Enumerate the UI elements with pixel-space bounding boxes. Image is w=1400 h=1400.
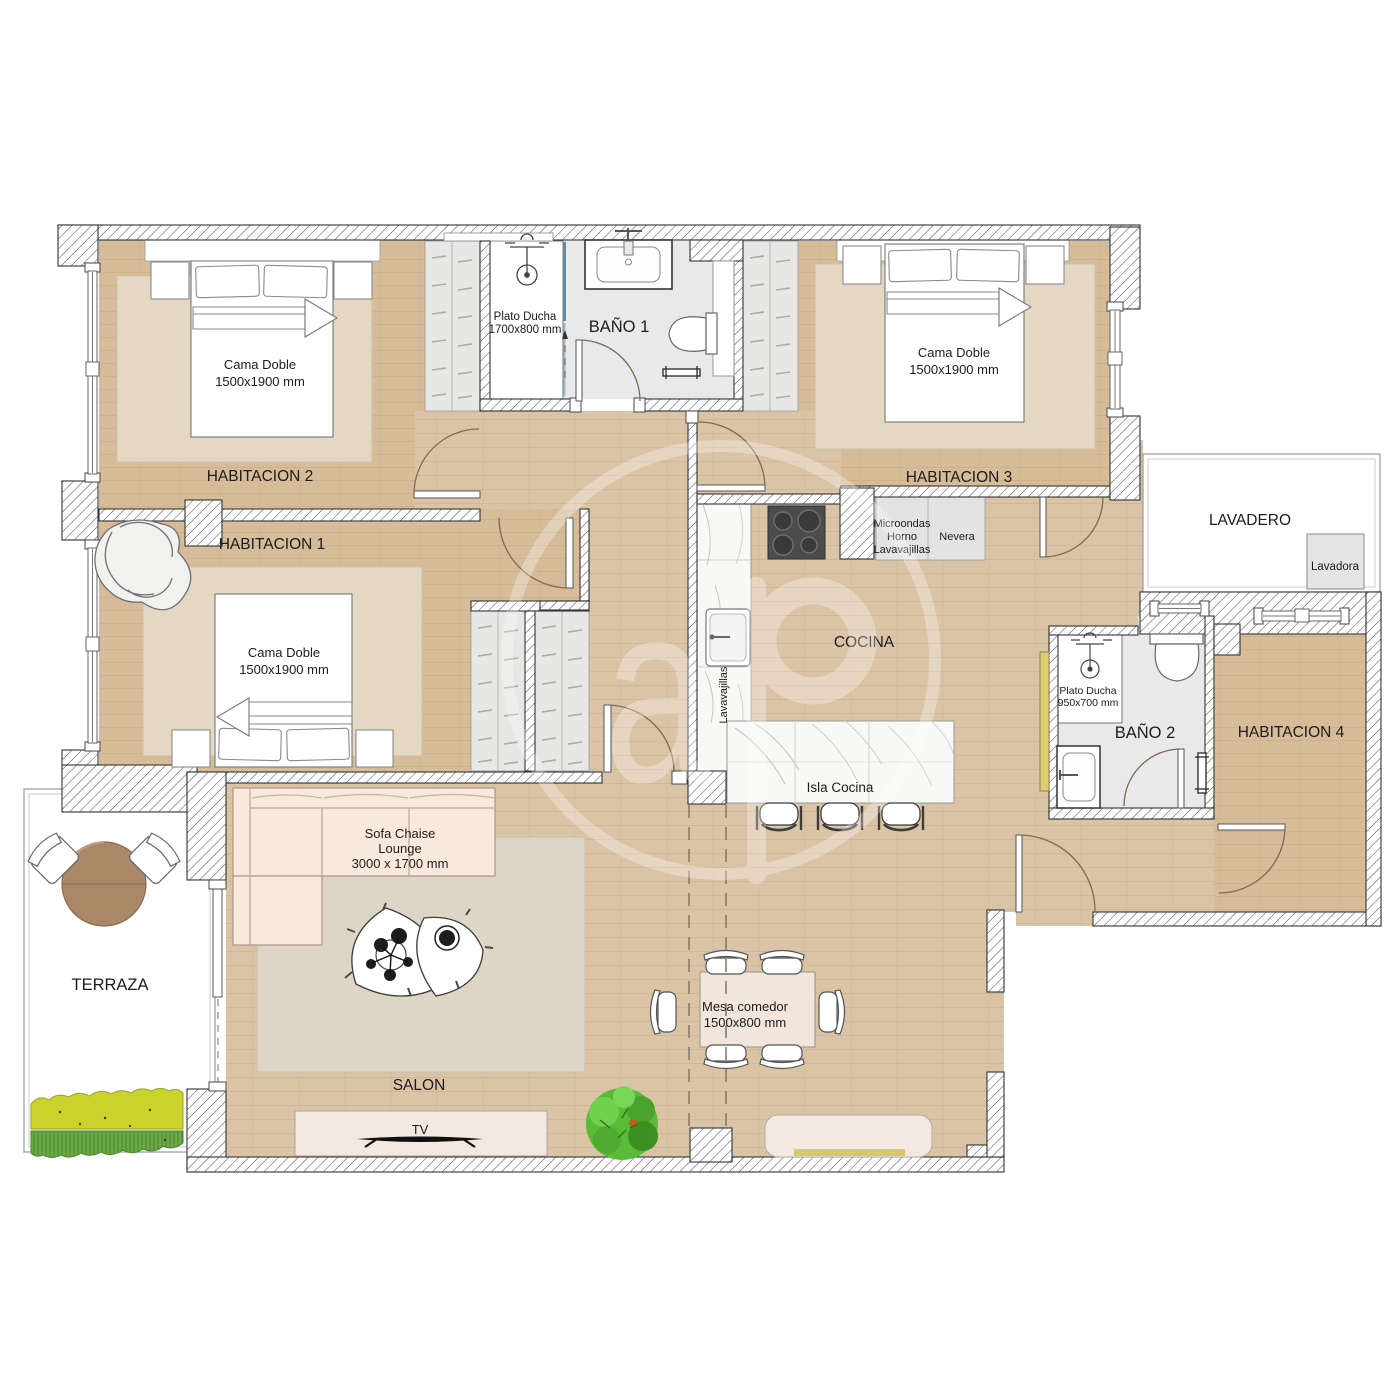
svg-text:TERRAZA: TERRAZA xyxy=(71,976,148,994)
svg-text:Nevera: Nevera xyxy=(939,531,975,543)
svg-text:BAÑO 1: BAÑO 1 xyxy=(589,316,650,336)
svg-text:950x700 mm: 950x700 mm xyxy=(1058,697,1119,709)
svg-text:a: a xyxy=(604,549,711,837)
svg-text:HABITACION 4: HABITACION 4 xyxy=(1238,724,1345,741)
svg-text:HABITACION 3: HABITACION 3 xyxy=(906,469,1013,486)
svg-text:Cama Doble: Cama Doble xyxy=(248,645,320,660)
svg-text:3000 x 1700 mm: 3000 x 1700 mm xyxy=(352,856,449,871)
svg-text:SALON: SALON xyxy=(393,1077,446,1094)
svg-text:Plato Ducha: Plato Ducha xyxy=(1059,685,1116,697)
svg-text:1500x1900 mm: 1500x1900 mm xyxy=(239,662,329,677)
svg-text:TV: TV xyxy=(412,1122,429,1137)
svg-text:Lavavajillas: Lavavajillas xyxy=(718,666,730,723)
svg-text:Cama Doble: Cama Doble xyxy=(918,345,990,360)
svg-text:Isla Cocina: Isla Cocina xyxy=(807,780,874,795)
svg-text:1500x800 mm: 1500x800 mm xyxy=(704,1015,786,1030)
svg-text:1700x800 mm: 1700x800 mm xyxy=(489,324,562,336)
svg-text:HABITACION 2: HABITACION 2 xyxy=(207,468,314,485)
svg-text:Cama Doble: Cama Doble xyxy=(224,357,296,372)
svg-text:1500x1900 mm: 1500x1900 mm xyxy=(909,362,999,377)
svg-text:LAVADERO: LAVADERO xyxy=(1209,512,1291,529)
svg-text:HABITACION 1: HABITACION 1 xyxy=(219,536,326,553)
svg-text:Mesa comedor: Mesa comedor xyxy=(702,999,789,1014)
svg-text:Plato Ducha: Plato Ducha xyxy=(494,311,557,323)
svg-text:Sofa Chaise: Sofa Chaise xyxy=(365,826,436,841)
svg-text:1500x1900 mm: 1500x1900 mm xyxy=(215,374,305,389)
svg-text:Lavadora: Lavadora xyxy=(1311,561,1360,573)
svg-text:BAÑO 2: BAÑO 2 xyxy=(1115,722,1176,742)
svg-text:Lounge: Lounge xyxy=(378,841,421,856)
